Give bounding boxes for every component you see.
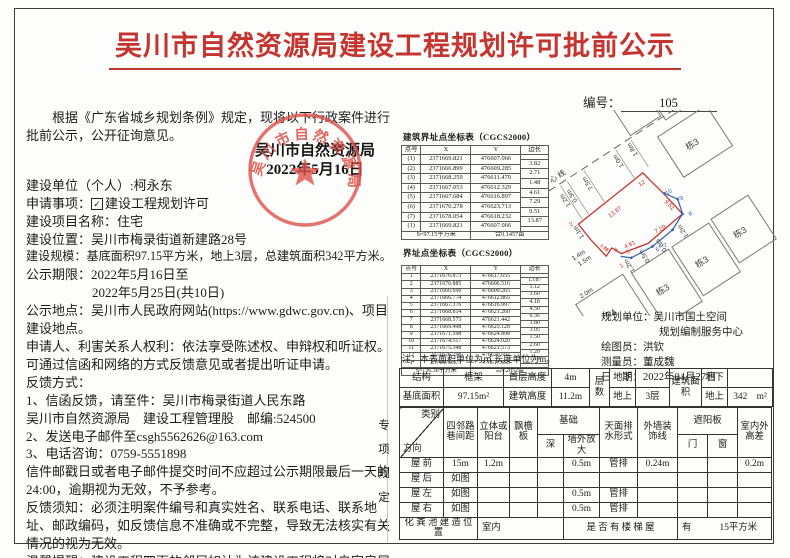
category-direction-header: 类别 方向 (400, 408, 444, 458)
provision-cell (510, 487, 538, 502)
provision-cell (678, 457, 708, 472)
building-height-label: 建筑高度 (504, 388, 552, 407)
floors-label: 层数 (590, 369, 610, 407)
provision-cell (708, 457, 738, 472)
edge-length-cell: 9.51 (521, 207, 549, 217)
provision-cell (564, 472, 600, 487)
col-foundation-expand: 墙外放大 (564, 435, 600, 458)
coord-cell: 2371669.498 (421, 324, 471, 331)
structure-value: 框架 (444, 369, 504, 388)
edge-label: 7.29 (654, 224, 668, 235)
provision-cell (478, 472, 510, 487)
coord-cell: 2371670.885 (421, 281, 471, 288)
col-wall-decoration: 外墙装饰线 (638, 408, 678, 458)
dim-label: 2.0m (579, 287, 595, 301)
provision-cell (678, 472, 708, 487)
coord-cell: 476621.260 (471, 310, 521, 317)
coord-cell: 476607.066 (471, 222, 521, 232)
dim-label: 0.5m (638, 248, 652, 264)
area-mu: 合0.1457亩 (471, 231, 549, 240)
direction-row-label: 屋 左 (400, 487, 444, 502)
page-title: 吴川市自然资源局建设工程规划许可批前公示 (109, 24, 681, 70)
col-window: 窗 (708, 435, 738, 458)
apply-value: 建设工程规划许可 (105, 196, 209, 211)
dim-label: 1.2m (623, 258, 637, 274)
col-header: 点号 (402, 146, 421, 155)
provision-cell (678, 502, 708, 517)
direction-row-label: 屋 前 (400, 457, 444, 472)
provision-cell: 如图 (444, 487, 478, 502)
building-area-label: 建筑面积 (670, 369, 702, 407)
authority-signature: 吴川市自然资源局 2022年5月16日 (244, 142, 386, 180)
authority-date: 2022年5月16日 (244, 161, 386, 180)
provision-cell: 15m (444, 457, 478, 472)
provision-cell (738, 502, 772, 517)
coord-cell: 476612.865 (471, 295, 521, 302)
area-underground (728, 369, 773, 388)
col-neighbor-spacing: 四邻路巷间距 (444, 408, 478, 458)
coord-cell: 2371666.699 (421, 288, 471, 295)
doc-number: 编号：105 (583, 92, 717, 112)
septic-tank-value: 室内 (478, 517, 564, 540)
coord-cell: 1 (402, 274, 421, 281)
provision-cell (738, 487, 772, 502)
coord-cell: 3 (402, 288, 421, 295)
apply-label: 申请事项： (26, 196, 91, 211)
coord-cell: 2371667.684 (421, 193, 471, 203)
notice-basis: 根据《广东省城乡规划条例》规定，现将以下行政案件进行批前公示，公开征询意见。 (26, 109, 393, 145)
coord-cell: (7) (402, 212, 421, 222)
area-total: S=97.15平方米 (402, 231, 471, 240)
edge-length-cell: 1.50 (521, 335, 549, 342)
septic-tank-label: 化 粪 池 建 造 位 置 (400, 517, 478, 540)
feedback-phone: 3、电话咨询：0759-5551898 (26, 445, 393, 463)
provision-cell (638, 502, 678, 517)
coord-cell: 476624.020 (471, 338, 521, 345)
building-outline (612, 110, 661, 136)
provision-cell: 0.24m (638, 457, 678, 472)
field-period-1: 公示期限：2022年5月16日至 (26, 266, 393, 284)
site-plan-map: 新建路中心线 (548, 110, 788, 316)
coord-cell: 476612.329 (471, 183, 521, 193)
stair-room-label: 是 否 有 楼 梯 屋 (564, 517, 678, 540)
col-sunshade: 遮阳板 (678, 408, 738, 435)
col-header: X (421, 146, 471, 155)
coord-cell: (1) (402, 155, 421, 165)
provision-cell (600, 472, 638, 487)
feedback-email: 2、发送电子邮件至csgh5562626@163.com (26, 428, 393, 446)
edge-label: 9.51 (663, 199, 676, 212)
coord-cell: 7 (402, 317, 421, 324)
provision-cell: 0.5m (564, 502, 600, 517)
category-label: 类别 (421, 410, 440, 421)
provision-cell: 管排 (600, 457, 638, 472)
edge-length-cell: 5.12 (521, 285, 549, 292)
structure-label: 结构 (400, 369, 444, 388)
edge-length-cell: 4.18 (521, 299, 549, 306)
table-unit-note: 注：本表面积单位为㎡ 长度单位为m。 (402, 352, 555, 365)
underground-label: 地下 (610, 369, 636, 388)
first-floor-value: 4m (552, 369, 590, 388)
provision-cell (638, 487, 678, 502)
checked-checkbox-icon: ✓ (91, 198, 103, 210)
provision-cell (510, 472, 538, 487)
provision-cell: 如图 (444, 502, 478, 517)
edge-length-cell: 4.50 (521, 306, 549, 313)
field-place: 公示地点：吴川市人民政府网站(https://www.gdwc.gov.cn)、… (26, 302, 393, 338)
direction-label: 方向 (403, 444, 422, 455)
coord-cell: 2371667.053 (421, 183, 471, 193)
building-label: 栋3 (654, 281, 672, 298)
coord-cell: 476623.713 (471, 202, 521, 212)
coord-cell: 2371666.899 (421, 164, 471, 174)
coord-table-2-title: 界址点坐标表（CGCS2000） (403, 247, 569, 259)
field-location: 建设位置：吴川市梅录街道新建路28号 (26, 231, 393, 249)
coord-cell: 8 (402, 324, 421, 331)
spec-summary-table: 结构 框架 首层高度 4m 层数 地下 建筑面积 地下 基底面积 97.15m²… (399, 368, 773, 407)
provision-cell: 0.5m (564, 457, 600, 472)
base-area-value: 97.15m² (444, 388, 504, 407)
coord-cell: 2371676.873 (421, 274, 471, 281)
first-floor-label: 首层高度 (504, 369, 552, 388)
col-height-difference: 室内外高差 (738, 408, 772, 458)
coord-cell: (2) (402, 164, 421, 174)
coord-cell: 2371668.573 (421, 317, 471, 324)
provision-cell (538, 487, 564, 502)
coord-cell: 476621.442 (471, 317, 521, 324)
col-header: Y (471, 146, 521, 155)
road-centerline (548, 110, 749, 241)
building-height-value: 11.2m (552, 388, 590, 407)
area-above: 342 m² (728, 388, 773, 407)
dim-label: 1.2m (677, 223, 691, 239)
point-number: 9 (679, 195, 686, 202)
field-rights: 申请人、利害关系人权利：依法享受陈述权、申辩权和听证权。可通过信函和网络的方式反… (26, 338, 393, 374)
col-foundation-depth: 深 (538, 435, 564, 458)
edge-length-cell: 1.48 (521, 178, 549, 188)
coord-cell: 476625.128 (471, 324, 521, 331)
building-label: 栋3 (693, 253, 711, 270)
planning-unit-line-1: 规划单位：吴川市国土空间 (601, 310, 743, 325)
coord-cell: 476606.516 (471, 281, 521, 288)
provision-cell (510, 457, 538, 472)
field-scale: 建设规模：基底面积97.15平方米，地上3层，总建筑面积342平方米。 (26, 248, 393, 266)
provision-cell: 如图 (444, 472, 478, 487)
provision-cell (538, 472, 564, 487)
col-eave-board: 飘檐板 (510, 408, 538, 458)
edge-length-cell: 2.60 (521, 342, 549, 349)
provision-cell (708, 472, 738, 487)
coord-cell: 5 (402, 303, 421, 310)
point-number: 10 (665, 188, 674, 197)
provision-cell: 管排 (600, 502, 638, 517)
provision-cell: 0.5m (564, 487, 600, 502)
coord-cell: 2371668.814 (421, 310, 471, 317)
edge-length-cell: 2.71 (521, 169, 549, 179)
field-project-name: 建设项目名称：住宅 (26, 213, 393, 231)
authority-name: 吴川市自然资源局 (244, 142, 386, 161)
doc-number-label: 编号： (583, 96, 621, 110)
coord-cell: 2371671.598 (421, 331, 471, 338)
feedback-mail-2: 吴川市自然资源局 建设工程管理股 邮编:524500 (26, 410, 393, 428)
feedback-title: 反馈方式： (26, 374, 393, 392)
coord-cell: (1) (402, 222, 421, 232)
edge-length-cell: 3.82 (521, 159, 549, 169)
coord-cell: 476624.898 (471, 331, 521, 338)
point-number: 12 (638, 179, 647, 188)
provision-cell (478, 502, 510, 517)
provision-cell (510, 502, 538, 517)
coord-cell: 9 (402, 331, 421, 338)
coord-cell: 2371668.259 (421, 174, 471, 184)
coord-cell: 476617.655 (471, 274, 521, 281)
building-label: 栋3 (683, 135, 701, 152)
coord-cell: (6) (402, 202, 421, 212)
col-foundation: 基础 (538, 408, 600, 435)
spec-table-block: 结构 框架 首层高度 4m 层数 地下 建筑面积 地下 基底面积 97.15m²… (399, 368, 772, 540)
coord-cell: (5) (402, 193, 421, 203)
point-number: 8 (688, 211, 695, 218)
edge-length-cell: 13.87 (521, 217, 549, 227)
edge-length-cell: 7.29 (521, 198, 549, 208)
coord-cell: 476616.897 (471, 193, 521, 203)
col-roof-drainage: 天面排水形式 (600, 408, 638, 458)
dim-label: 1.8m (626, 141, 640, 157)
above-label: 地上 (702, 388, 728, 407)
provision-cell (738, 472, 772, 487)
provision-cell: 0.2m (738, 457, 772, 472)
edge-length-cell: 13.87 (521, 277, 549, 284)
coord-cell: 2371669.821 (421, 155, 471, 165)
provision-cell (538, 502, 564, 517)
coord-cell: 476609.265 (471, 288, 521, 295)
col-balcony: 立体或阳台 (478, 408, 510, 458)
edge-length-cell: 3.05 (521, 328, 549, 335)
special-provisions-vertical-label: 专项规定 (377, 414, 391, 510)
col-header: Y (471, 266, 521, 274)
coord-cell: 2371669.821 (421, 222, 471, 232)
col-door: 门 (678, 435, 708, 458)
public-notice-document: 吴川市自然资源局建设工程规划许可批前公示 编号：105 根据《广东省城乡规划条例… (0, 0, 790, 558)
coord-cell: 476618.232 (471, 212, 521, 222)
edge-label: 13.87 (608, 205, 624, 219)
coord-cell: 4 (402, 295, 421, 302)
stair-room-value: 有 15平方米 (678, 517, 772, 540)
provision-cell (478, 487, 510, 502)
above-floors: 3层 (636, 388, 670, 407)
provision-cell (678, 487, 708, 502)
dim-label: 1.0m (612, 153, 626, 169)
provision-cell (708, 487, 738, 502)
reminder: 温馨提醒：建设工程四面的邻居如认为该建设工程将对自家房屋的建筑结构产生影响、破坏… (26, 553, 393, 558)
col-header: X (421, 266, 471, 274)
provision-cell (708, 502, 738, 517)
col-header: 点号 (402, 266, 421, 274)
underground-floors (636, 369, 670, 388)
col-header: 边长 (521, 266, 549, 274)
coord-cell: (3) (402, 174, 421, 184)
edge-length-cell: 0.36 (521, 313, 549, 320)
coord-cell: 2371678.054 (421, 212, 471, 222)
field-period-2: 2022年5月25日(共10日) (26, 284, 393, 302)
coord-table-1: 点号 X Y 边长 (1)2371669.821476607.0663.82(2… (401, 145, 549, 240)
provision-cell (538, 457, 564, 472)
coord-cell: 2 (402, 281, 421, 288)
coord-cell: 10 (402, 338, 421, 345)
base-area-label: 基底面积 (400, 388, 444, 407)
dim-label: 7.5m (581, 175, 595, 191)
coord-cell: 6 (402, 310, 421, 317)
planning-unit-line-2: 规划编制服务中心 (601, 325, 743, 340)
edge-length-cell: 4.61 (521, 188, 549, 198)
edge-length-cell: 3.60 (521, 292, 549, 299)
edge-length-cell: 3.80 (521, 320, 549, 327)
underground-label: 地下 (702, 369, 728, 388)
coord-cell: 476616.997 (471, 303, 521, 310)
coord-cell: 2371667.376 (421, 303, 471, 310)
building-label: 栋3 (731, 224, 749, 241)
building-outline (649, 110, 690, 120)
provision-cell: 1.2m (478, 457, 510, 472)
col-header: 边长 (521, 146, 549, 155)
field-apply-item: 申请事项：✓建设工程规划许可 (26, 195, 393, 213)
provision-cell (638, 472, 678, 487)
direction-row-label: 屋 右 (400, 502, 444, 517)
coordinate-tables: 建筑界址点坐标表（CGCS2000） 点号 X Y 边长 (1)2371669.… (399, 131, 569, 376)
drafter: 绘图员：洪钦 (601, 340, 743, 355)
coord-table-1-title: 建筑界址点坐标表（CGCS2000） (403, 131, 569, 143)
coord-cell: 476611.479 (471, 174, 521, 184)
coord-cell: 2371674.517 (421, 338, 471, 345)
coord-cell: 2371666.774 (421, 295, 471, 302)
provision-cell: 管排 (600, 487, 638, 502)
above-label: 地上 (610, 388, 636, 407)
deadline-note: 信件邮戳日或者电子邮件提交时间不应超过公示期限最后一天的24:00，逾期视为无效… (26, 463, 393, 499)
coord-cell: 476607.066 (471, 155, 521, 165)
feedback-requirements: 反馈须知：必须注明案件编号和真实姓名、联系电话、联系地址、邮政编码，如反馈信息不… (26, 499, 393, 553)
coord-cell: (4) (402, 183, 421, 193)
coord-cell: 476609.285 (471, 164, 521, 174)
direction-row-label: 屋 后 (400, 472, 444, 487)
feedback-mail-1: 1、信函反馈，请至件：吴川市梅录街道人民东路 (26, 392, 393, 410)
spec-provisions-table: 类别 方向 四邻路巷间距 立体或阳台 飘檐板 基础 天面排水形式 外墙装饰线 遮… (399, 407, 772, 540)
coord-cell: 2371670.278 (421, 202, 471, 212)
